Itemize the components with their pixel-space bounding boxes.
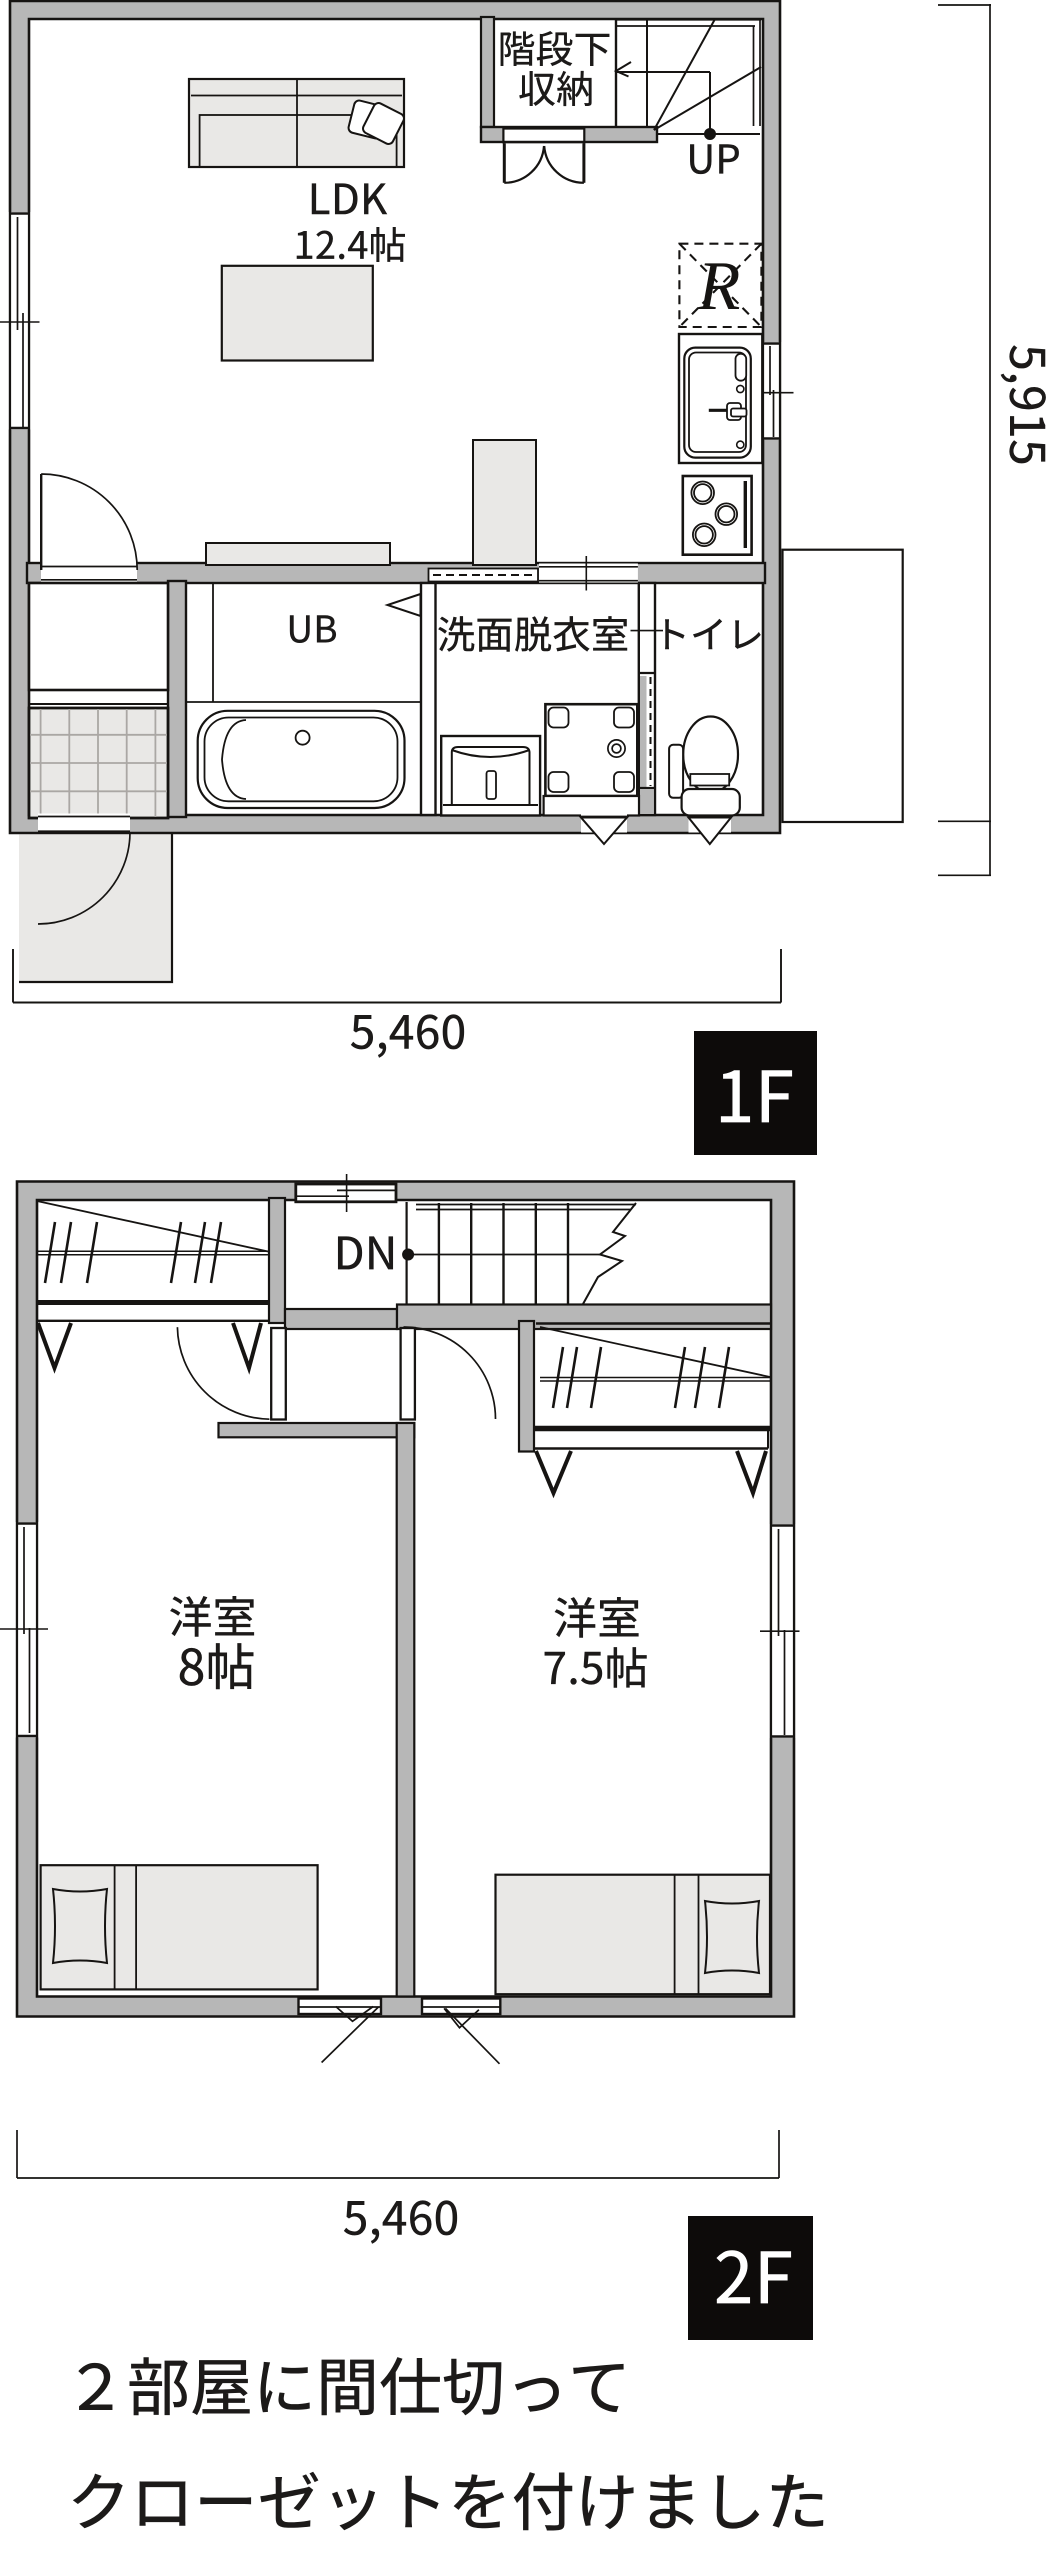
svg-text:R: R <box>697 248 741 325</box>
